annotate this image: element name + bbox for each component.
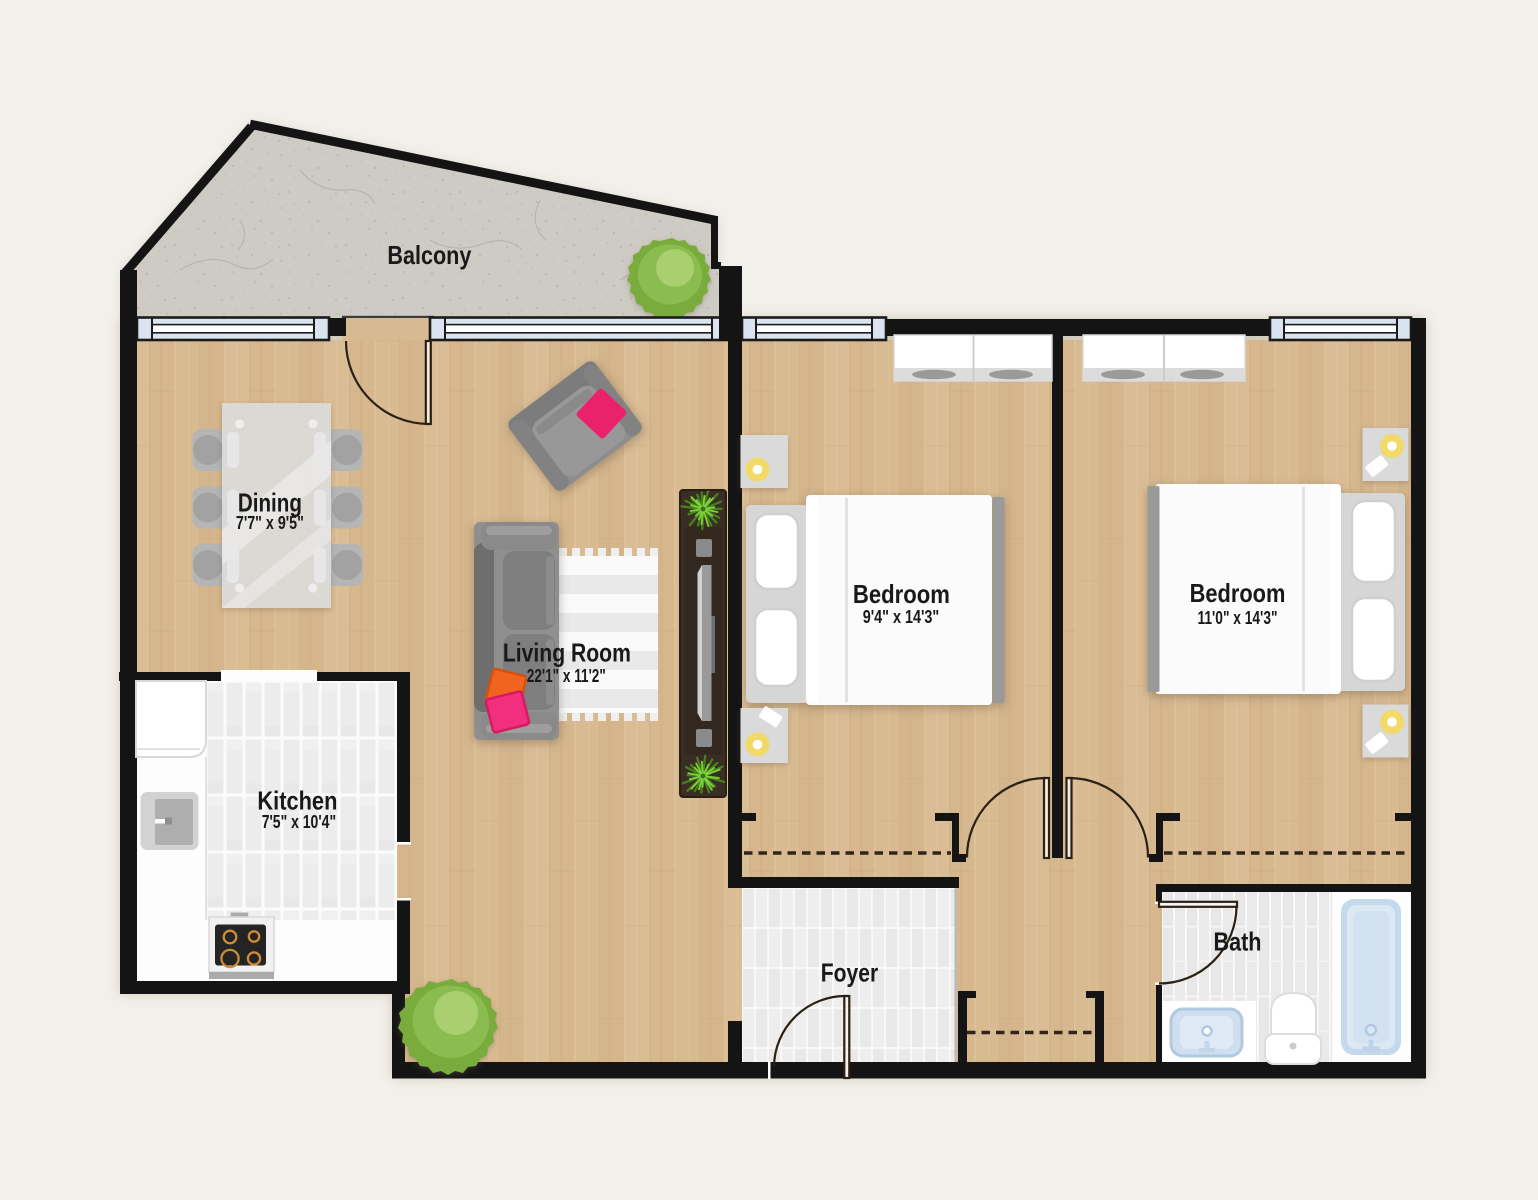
svg-text:7'5" x 10'4": 7'5" x 10'4" xyxy=(262,811,336,832)
svg-text:11'0" x 14'3": 11'0" x 14'3" xyxy=(1198,607,1278,628)
svg-text:22'1" x 11'2": 22'1" x 11'2" xyxy=(527,665,606,686)
svg-text:7'7" x 9'5": 7'7" x 9'5" xyxy=(236,512,304,533)
svg-text:Bath: Bath xyxy=(1214,926,1262,956)
svg-text:Living Room: Living Room xyxy=(503,638,631,668)
svg-text:Balcony: Balcony xyxy=(387,240,471,270)
svg-text:Bedroom: Bedroom xyxy=(1190,578,1286,608)
svg-text:9'4" x 14'3": 9'4" x 14'3" xyxy=(863,606,940,627)
svg-text:Bedroom: Bedroom xyxy=(853,579,950,609)
svg-text:Foyer: Foyer xyxy=(821,957,878,987)
